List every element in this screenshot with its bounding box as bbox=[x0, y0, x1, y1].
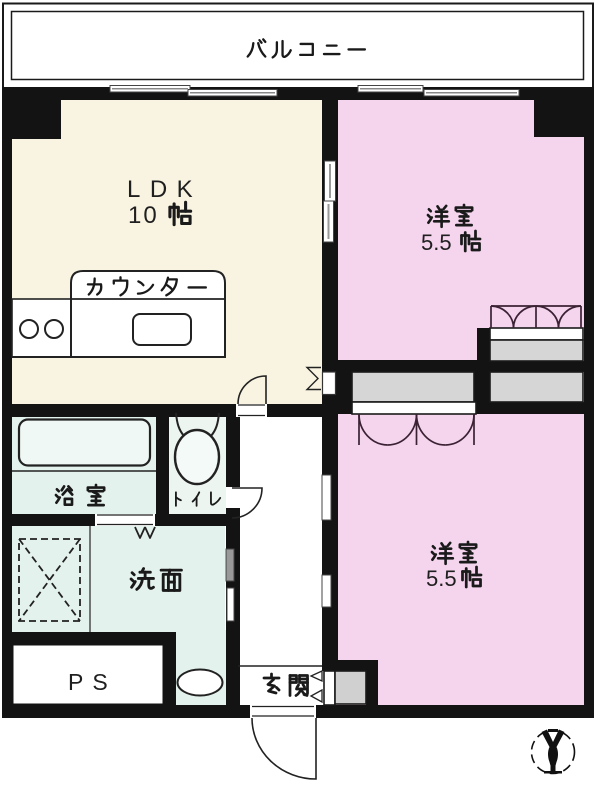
svg-text:PS: PS bbox=[68, 669, 117, 695]
svg-text:10: 10 bbox=[128, 202, 159, 229]
svg-text:5.5: 5.5 bbox=[421, 230, 452, 255]
svg-text:LDK: LDK bbox=[127, 176, 202, 203]
svg-text:5.5: 5.5 bbox=[426, 566, 457, 591]
